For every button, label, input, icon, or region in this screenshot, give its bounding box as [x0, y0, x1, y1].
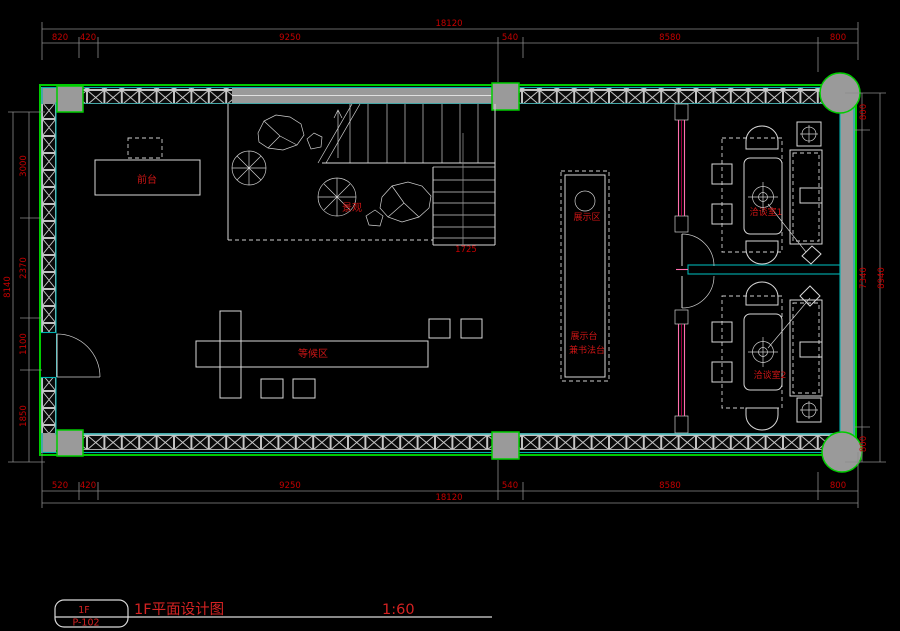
display-vase	[575, 191, 595, 211]
column-bottom-middle	[492, 432, 519, 459]
chair	[746, 282, 778, 305]
dim-bottom-seg: 8580	[659, 481, 681, 491]
side-cabinet	[790, 150, 822, 244]
label-display-table-line1: 展示台	[570, 330, 597, 342]
chair	[746, 408, 778, 430]
label-landscape: 景观	[342, 202, 362, 214]
dim-bottom-seg: 540	[502, 481, 518, 491]
sheet-tag-number: P-102	[72, 618, 99, 629]
column-top-left	[57, 86, 83, 112]
label-display-area: 展示区	[573, 212, 600, 223]
label-meeting-room-2: 洽谈室2	[754, 369, 787, 381]
ceiling-unit	[797, 398, 821, 422]
door-swing-arc	[57, 334, 100, 377]
stair-break-line	[318, 104, 360, 163]
stool	[712, 204, 732, 224]
dimension-top: 18120 820 420 9250 540 8580 800	[42, 19, 858, 82]
stool	[293, 379, 315, 398]
room-divider-wall	[688, 265, 840, 274]
dim-top-seg: 800	[830, 33, 846, 43]
column-bottom-right	[822, 432, 862, 472]
wall-hatch-top-right	[495, 88, 838, 103]
floor-plan-canvas: 前台 景观	[0, 0, 900, 631]
dim-top-seg: 540	[502, 33, 518, 43]
landscape-garden: 景观	[228, 104, 433, 240]
dim-bottom-overall: 18120	[435, 493, 462, 503]
chair	[746, 126, 778, 149]
stool	[429, 319, 450, 338]
dimension-left: 3000 2370 1100 1850 8140	[3, 112, 45, 462]
dim-top-seg: 9250	[279, 33, 301, 43]
dimension-bottom: 520 420 9250 540 8580 800 18120	[42, 452, 858, 508]
dim-top-overall: 18120	[435, 19, 462, 29]
dim-bottom-seg: 800	[830, 481, 846, 491]
column-top-middle	[492, 83, 519, 110]
cad-floor-plan-screenshot: 前台 景观	[0, 0, 900, 631]
chair	[746, 241, 778, 264]
label-meeting-room-1: 洽谈室1	[750, 206, 783, 218]
dim-bottom-seg: 9250	[279, 481, 301, 491]
label-stair-dimension: 1725	[455, 245, 477, 255]
meeting-room-1-door	[682, 234, 714, 266]
stool	[461, 319, 482, 338]
dim-top-seg: 420	[80, 33, 96, 43]
drawing-scale: 1:60	[382, 602, 415, 618]
plant-circle-1	[232, 151, 266, 185]
dim-right-overall: 8940	[877, 267, 887, 289]
display-counter: 展示区 展示台 兼书法台	[561, 171, 609, 381]
ceiling-unit	[797, 122, 821, 146]
meeting-room-2-door	[682, 276, 714, 308]
floor-lamp	[802, 246, 821, 264]
drawing-title: 1F平面设计图	[134, 601, 224, 618]
meeting-room-1: 洽谈室1	[712, 122, 822, 264]
front-desk: 前台	[95, 138, 200, 195]
column-bottom-left	[57, 430, 83, 456]
stair-direction-arrow	[334, 110, 342, 158]
side-cabinet	[790, 300, 822, 396]
meeting-room-2: 洽谈室2	[712, 282, 822, 430]
glass-partition-lower	[679, 324, 685, 416]
dim-left-seg: 2370	[19, 257, 29, 279]
stool	[261, 379, 283, 398]
dim-top-seg: 820	[52, 33, 68, 43]
dim-right-seg: 800	[859, 104, 869, 120]
dim-bottom-seg: 520	[52, 481, 68, 491]
dim-left-seg: 1100	[19, 333, 29, 355]
dim-left-seg: 1850	[19, 405, 29, 427]
dim-right-seg: 800	[859, 436, 869, 452]
dim-bottom-seg: 420	[80, 481, 96, 491]
dim-right-seg: 7340	[859, 267, 869, 289]
wall-hatch-bottom	[57, 435, 838, 450]
glass-partition-upper	[679, 120, 685, 216]
sheet-tag-floor: 1F	[78, 605, 90, 616]
label-display-table-line2: 兼书法台	[569, 344, 605, 356]
label-front-desk: 前台	[137, 173, 157, 186]
label-waiting-area: 等候区	[298, 347, 328, 360]
title-block: 1F P-102 1F平面设计图 1:60	[55, 600, 492, 629]
dim-left-overall: 8140	[3, 276, 13, 298]
waiting-area: 等候区	[196, 311, 482, 398]
reception-chair	[128, 138, 162, 158]
wall-hatch-left-upper	[42, 104, 56, 332]
structural-columns	[57, 73, 862, 472]
waiting-bench-vertical	[220, 311, 241, 398]
wall-hatch-left-lower	[42, 378, 56, 433]
dim-left-seg: 3000	[19, 155, 29, 177]
entry-door	[41, 333, 100, 378]
dim-top-seg: 8580	[659, 33, 681, 43]
